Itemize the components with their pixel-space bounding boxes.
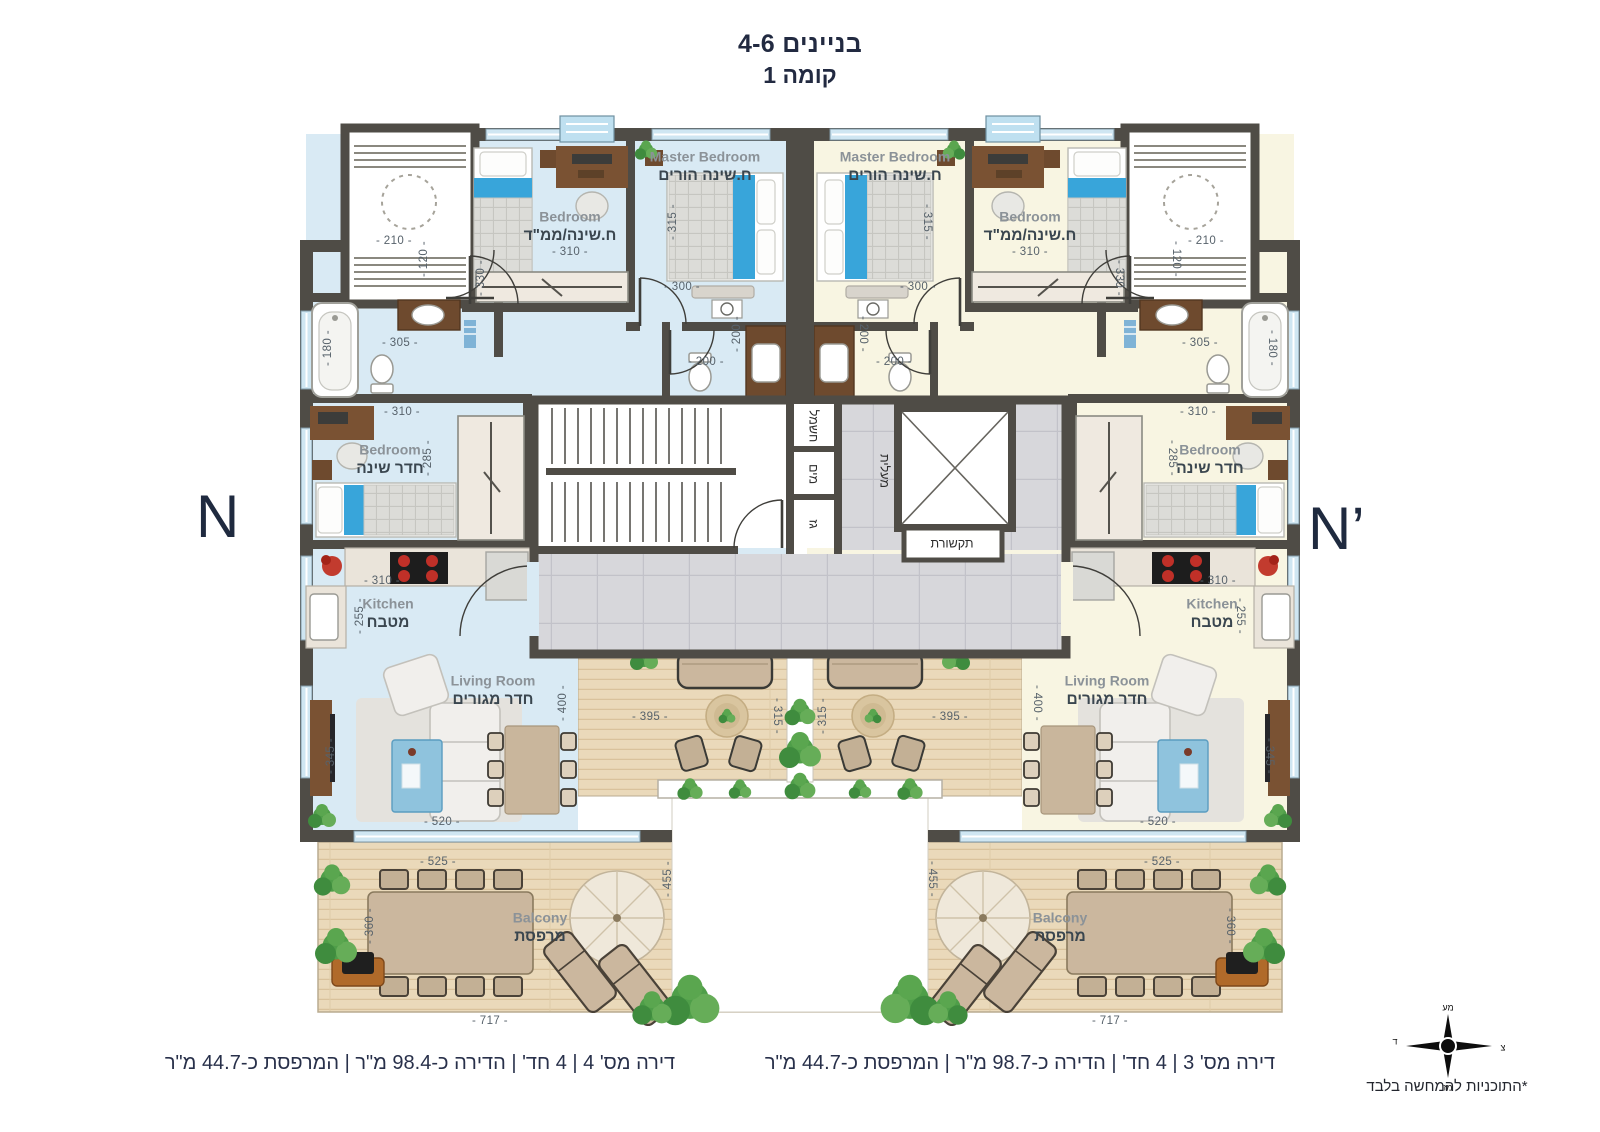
dimension-label: - 255 - <box>1234 598 1246 634</box>
floor-title: קומה 1 <box>0 62 1600 89</box>
room-label: Bedroom <box>999 209 1060 225</box>
dimension-label: - 285 - <box>422 440 434 476</box>
dimension-label: - 310 - <box>384 406 420 418</box>
elevator <box>898 408 1012 528</box>
compass-label-left: ד <box>1393 1036 1398 1046</box>
dimension-label: - 310 - <box>1180 406 1216 418</box>
compass-label-top: מע <box>1442 1002 1453 1012</box>
dimension-label: - 305 - <box>382 337 418 349</box>
buildings-title: בניינים 4-6 <box>0 30 1600 59</box>
dimension-label: - 315 - <box>817 698 829 734</box>
dimension-label: - 345 - <box>325 738 337 774</box>
dimension-label: - 315 - <box>667 204 679 240</box>
dimension-label: - 210 - <box>1188 235 1224 247</box>
dimension-label: - 310 - <box>364 575 400 587</box>
dimension-label: - 210 - <box>376 235 412 247</box>
dimension-label: - 717 - <box>1092 1015 1128 1027</box>
dimension-label: - 360 - <box>364 908 376 944</box>
dimension-label: - 200 - <box>688 356 724 368</box>
room-label: Master Bedroom <box>840 149 950 165</box>
room-label: Kitchen <box>1186 596 1237 612</box>
dimension-label: - 300 - <box>664 281 700 293</box>
room-label: Balcony <box>1033 910 1088 926</box>
dimension-label: - 345 - <box>1263 738 1275 774</box>
room-label: חדר שינה <box>1176 460 1243 477</box>
room-label: חדר שינה <box>356 460 423 477</box>
dimension-label: - 200 - <box>876 356 912 368</box>
room-label: Living Room <box>451 673 536 689</box>
dimension-label: - 200 - <box>731 316 743 352</box>
dimension-label: - 400 - <box>1031 685 1043 721</box>
room-label: Balcony <box>513 910 568 926</box>
section-marker-n-prime: N’ <box>1308 494 1365 563</box>
dimension-label: - 310 - <box>1200 575 1236 587</box>
room-label: חדר מגורים <box>453 691 534 708</box>
room-label: ח.שינה הורים <box>848 167 941 184</box>
room-label: מטבח <box>1191 614 1234 631</box>
dimension-label: - 520 - <box>1140 816 1176 828</box>
room-label: ח.שינה/ממ"ד <box>524 227 617 244</box>
room-label: מים <box>807 464 821 484</box>
room-label: Master Bedroom <box>650 149 760 165</box>
room-label: מעלית <box>878 454 892 488</box>
room-label: Living Room <box>1065 673 1150 689</box>
dimension-label: - 455 - <box>926 861 938 897</box>
compass-label-right: צ <box>1501 1042 1506 1052</box>
dimension-label: - 200 - <box>857 316 869 352</box>
apartment-3-caption: דירה מס' 3 | 4 חד' | הדירה כ-98.7 מ"ר | … <box>660 1052 1380 1075</box>
room-label: מרפסת <box>1034 928 1086 945</box>
room-label: מרפסת <box>514 928 566 945</box>
dimension-label: - 180 - <box>322 330 334 366</box>
dimension-label: - 330 - <box>1113 260 1125 296</box>
dimension-label: - 395 - <box>632 711 668 723</box>
floor-plan-svg: מעליתתקשורתחשמלמיםגז Bedroomח.שינה/ממ"דM… <box>0 0 1600 1132</box>
room-label: חשמל <box>807 410 821 442</box>
dimension-label: - 180 - <box>1266 330 1278 366</box>
dimension-label: - 360 - <box>1224 908 1236 944</box>
room-label: חדר מגורים <box>1067 691 1148 708</box>
room-label: גז <box>807 519 821 528</box>
dimension-label: - 520 - <box>424 816 460 828</box>
dimension-label: - 315 - <box>921 204 933 240</box>
room-label: Bedroom <box>539 209 600 225</box>
room-label: תקשורת <box>930 536 973 550</box>
dimension-label: - 315 - <box>771 698 783 734</box>
room-label: Bedroom <box>1179 442 1240 458</box>
dimension-label: - 525 - <box>1144 856 1180 868</box>
dimension-label: - 395 - <box>932 711 968 723</box>
room-label: Bedroom <box>359 442 420 458</box>
dimension-label: - 255 - <box>354 598 366 634</box>
dimension-label: - 310 - <box>552 246 588 258</box>
dimension-label: - 330 - <box>475 260 487 296</box>
room-label: ח.שינה/ממ"ד <box>984 227 1077 244</box>
dimension-label: - 285 - <box>1166 440 1178 476</box>
floor-plan-page: מעליתתקשורתחשמלמיםגז Bedroomח.שינה/ממ"דM… <box>0 0 1600 1132</box>
room-label: מטבח <box>367 614 410 631</box>
dimension-label: - 310 - <box>1012 246 1048 258</box>
dimension-label: - 455 - <box>662 861 674 897</box>
dimension-label: - 120 - <box>1170 241 1182 277</box>
section-marker-n: N <box>196 482 239 551</box>
dimension-label: - 717 - <box>472 1015 508 1027</box>
dimension-label: - 400 - <box>557 685 569 721</box>
dimension-label: - 525 - <box>420 856 456 868</box>
dimension-label: - 120 - <box>418 241 430 277</box>
room-label: Kitchen <box>362 596 413 612</box>
room-label: ח.שינה הורים <box>658 167 751 184</box>
plan-title: בניינים 4-6 קומה 1 <box>0 30 1600 89</box>
disclaimer: *התוכניות להמחשה בלבד <box>1312 1078 1582 1095</box>
compass-star <box>1406 1014 1492 1078</box>
dimension-label: - 300 - <box>900 281 936 293</box>
dimension-label: - 305 - <box>1182 337 1218 349</box>
